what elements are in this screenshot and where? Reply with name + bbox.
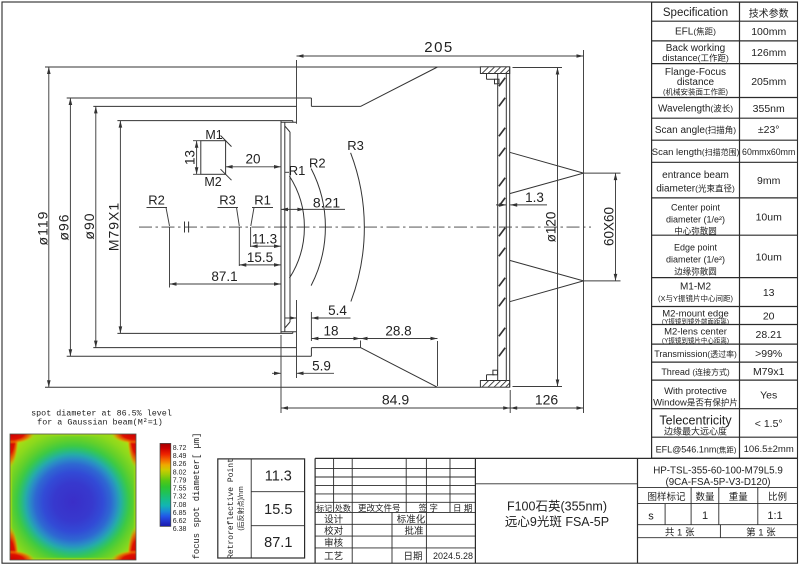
svg-text:100mm: 100mm bbox=[751, 26, 786, 38]
svg-text:205: 205 bbox=[424, 39, 454, 56]
svg-text:8.02: 8.02 bbox=[173, 469, 187, 476]
svg-text:Wavelength(波长): Wavelength(波长) bbox=[658, 104, 733, 115]
svg-text:M79x1: M79x1 bbox=[753, 366, 785, 378]
svg-text:355nm: 355nm bbox=[753, 103, 785, 115]
svg-text:Telecentricity: Telecentricity bbox=[659, 414, 732, 428]
svg-text:(Y振镜到镜片中心距离): (Y振镜到镜片中心距离) bbox=[662, 336, 729, 345]
svg-text:设计: 设计 bbox=[324, 513, 344, 525]
svg-text:7.79: 7.79 bbox=[173, 478, 187, 485]
svg-text:Transmission(透过率): Transmission(透过率) bbox=[654, 349, 737, 359]
svg-text:R2: R2 bbox=[309, 156, 326, 171]
svg-text:7.32: 7.32 bbox=[173, 494, 187, 501]
svg-text:ø90: ø90 bbox=[81, 212, 97, 239]
svg-text:图样标记: 图样标记 bbox=[647, 491, 686, 503]
svg-text:±23°: ±23° bbox=[758, 124, 780, 136]
svg-text:< 1.5°: < 1.5° bbox=[755, 418, 783, 430]
svg-text:M1: M1 bbox=[205, 128, 222, 142]
svg-text:第 1 张: 第 1 张 bbox=[746, 526, 776, 538]
svg-text:11.3: 11.3 bbox=[252, 232, 277, 247]
svg-text:EFL@546.1nm(焦距): EFL@546.1nm(焦距) bbox=[656, 445, 737, 455]
svg-text:比例: 比例 bbox=[768, 491, 787, 503]
svg-text:(后反射点)/nm: (后反射点)/nm bbox=[236, 486, 245, 530]
svg-text:标准化: 标准化 bbox=[397, 513, 426, 525]
svg-text:审核: 审核 bbox=[324, 537, 344, 549]
svg-text:18: 18 bbox=[323, 324, 338, 339]
svg-text:84.9: 84.9 bbox=[382, 392, 409, 408]
svg-text:R2: R2 bbox=[148, 193, 165, 208]
svg-text:distance(工作距): distance(工作距) bbox=[662, 53, 729, 64]
svg-text:126mm: 126mm bbox=[751, 47, 786, 59]
svg-text:60X60: 60X60 bbox=[602, 207, 617, 246]
svg-text:7.55: 7.55 bbox=[173, 486, 187, 493]
svg-text:1.3: 1.3 bbox=[525, 190, 544, 205]
svg-text:10um: 10um bbox=[756, 252, 783, 264]
svg-text:F100石英(355nm): F100石英(355nm) bbox=[507, 500, 607, 514]
svg-text:9mm: 9mm bbox=[757, 175, 781, 187]
svg-text:15.5: 15.5 bbox=[264, 502, 292, 518]
svg-text:126: 126 bbox=[535, 392, 559, 408]
svg-text:5.9: 5.9 bbox=[312, 359, 331, 374]
svg-text:(X与Y振镜片中心间距): (X与Y振镜片中心间距) bbox=[658, 293, 734, 303]
svg-text:10um: 10um bbox=[756, 212, 783, 224]
svg-text:13: 13 bbox=[763, 287, 775, 299]
svg-text:8.49: 8.49 bbox=[173, 453, 187, 460]
svg-text:s: s bbox=[648, 511, 654, 523]
svg-text:20: 20 bbox=[763, 311, 775, 323]
svg-text:(9CA-FSA-5P-V3-D120): (9CA-FSA-5P-V3-D120) bbox=[665, 477, 770, 488]
svg-text:6.85: 6.85 bbox=[173, 510, 187, 517]
svg-text:校对: 校对 bbox=[324, 525, 344, 537]
svg-text:远心9光斑 FSA-5P: 远心9光斑 FSA-5P bbox=[505, 515, 609, 529]
svg-text:ø119: ø119 bbox=[35, 211, 51, 246]
svg-text:签 字: 签 字 bbox=[419, 503, 438, 513]
svg-text:7.08: 7.08 bbox=[173, 502, 187, 509]
svg-text:工艺: 工艺 bbox=[324, 551, 343, 562]
svg-text:R3: R3 bbox=[219, 193, 236, 208]
svg-text:distance: distance bbox=[677, 77, 715, 88]
svg-text:focus spot diameter[ µm]: focus spot diameter[ µm] bbox=[192, 433, 202, 560]
svg-text:With protective: With protective bbox=[664, 386, 727, 397]
svg-text:边缘弥散圆: 边缘弥散圆 bbox=[674, 267, 717, 277]
svg-text:20: 20 bbox=[245, 152, 260, 167]
svg-text:日 期: 日 期 bbox=[453, 503, 472, 513]
svg-text:M1-M2: M1-M2 bbox=[680, 282, 712, 293]
svg-text:边缘最大远心度: 边缘最大远心度 bbox=[664, 426, 727, 437]
svg-text:11.3: 11.3 bbox=[265, 469, 292, 485]
svg-text:28.8: 28.8 bbox=[385, 324, 411, 339]
svg-text:13: 13 bbox=[183, 150, 198, 165]
svg-text:日期: 日期 bbox=[403, 551, 422, 562]
svg-text:Edge point: Edge point bbox=[674, 243, 718, 253]
svg-text:Retroreflective Point: Retroreflective Point bbox=[227, 458, 236, 559]
svg-text:Window是否有保护片: Window是否有保护片 bbox=[653, 398, 738, 409]
svg-text:Specification: Specification bbox=[663, 7, 728, 19]
svg-text:中心弥散圆: 中心弥散圆 bbox=[674, 226, 717, 236]
svg-text:diameter (1/e²): diameter (1/e²) bbox=[666, 255, 725, 265]
svg-text:处数: 处数 bbox=[335, 503, 351, 513]
svg-text:Scan angle(扫描角): Scan angle(扫描角) bbox=[655, 125, 736, 136]
svg-text:Thread (连接方式): Thread (连接方式) bbox=[661, 367, 730, 377]
svg-text:1:1: 1:1 bbox=[767, 510, 782, 522]
svg-text:EFL(焦距): EFL(焦距) bbox=[675, 27, 716, 38]
svg-text:8.26: 8.26 bbox=[173, 461, 187, 468]
svg-text:8.72: 8.72 bbox=[173, 445, 187, 452]
svg-text:8.21: 8.21 bbox=[313, 195, 340, 211]
svg-text:6.62: 6.62 bbox=[173, 518, 187, 525]
svg-text:(Y振镜到镜外端面距离): (Y振镜到镜外端面距离) bbox=[662, 317, 729, 326]
svg-text:更改文件号: 更改文件号 bbox=[358, 503, 401, 513]
svg-text:R1: R1 bbox=[254, 193, 271, 208]
svg-text:M2-lens center: M2-lens center bbox=[664, 327, 727, 338]
svg-text:ø96: ø96 bbox=[56, 213, 72, 240]
svg-text:Scan length(扫描范围): Scan length(扫描范围) bbox=[652, 147, 740, 158]
svg-text:M79X1: M79X1 bbox=[106, 202, 122, 251]
svg-text:Yes: Yes bbox=[760, 390, 777, 402]
svg-text:ø120: ø120 bbox=[544, 212, 559, 243]
svg-text:87.1: 87.1 bbox=[264, 535, 292, 551]
svg-text:60mmx60mm: 60mmx60mm bbox=[742, 147, 795, 157]
svg-text:diameter (1/e²): diameter (1/e²) bbox=[666, 215, 725, 225]
svg-text:106.5±2mm: 106.5±2mm bbox=[744, 444, 794, 455]
svg-text:87.1: 87.1 bbox=[211, 269, 237, 284]
svg-text:R3: R3 bbox=[347, 138, 364, 153]
svg-text:标记: 标记 bbox=[316, 503, 332, 513]
svg-text:entrance beam: entrance beam bbox=[662, 170, 729, 181]
svg-text:for a Gaussian beam(M²=1): for a Gaussian beam(M²=1) bbox=[37, 418, 163, 428]
svg-text:技术参数: 技术参数 bbox=[749, 7, 789, 20]
svg-text:2024.5.28: 2024.5.28 bbox=[433, 551, 473, 561]
svg-text:R1: R1 bbox=[289, 163, 306, 178]
svg-text:5.4: 5.4 bbox=[328, 303, 347, 318]
svg-text:>99%: >99% bbox=[755, 348, 782, 360]
svg-text:1: 1 bbox=[702, 510, 708, 522]
svg-text:HP-TSL-355-60-100-M79L5.9: HP-TSL-355-60-100-M79L5.9 bbox=[653, 466, 783, 477]
svg-text:diameter(光束直径): diameter(光束直径) bbox=[656, 184, 735, 195]
svg-text:批准: 批准 bbox=[404, 525, 424, 537]
svg-text:15.5: 15.5 bbox=[247, 250, 273, 265]
svg-text:(机械安装面工作距): (机械安装面工作距) bbox=[663, 87, 728, 97]
svg-text:Center point: Center point bbox=[671, 203, 721, 213]
svg-text:M2: M2 bbox=[204, 175, 221, 189]
svg-text:6.38: 6.38 bbox=[173, 526, 187, 533]
svg-text:共 1 张: 共 1 张 bbox=[665, 527, 695, 538]
svg-text:28.21: 28.21 bbox=[756, 329, 782, 341]
svg-text:205mm: 205mm bbox=[751, 76, 786, 88]
svg-text:重量: 重量 bbox=[729, 491, 749, 503]
svg-text:数量: 数量 bbox=[695, 491, 715, 503]
